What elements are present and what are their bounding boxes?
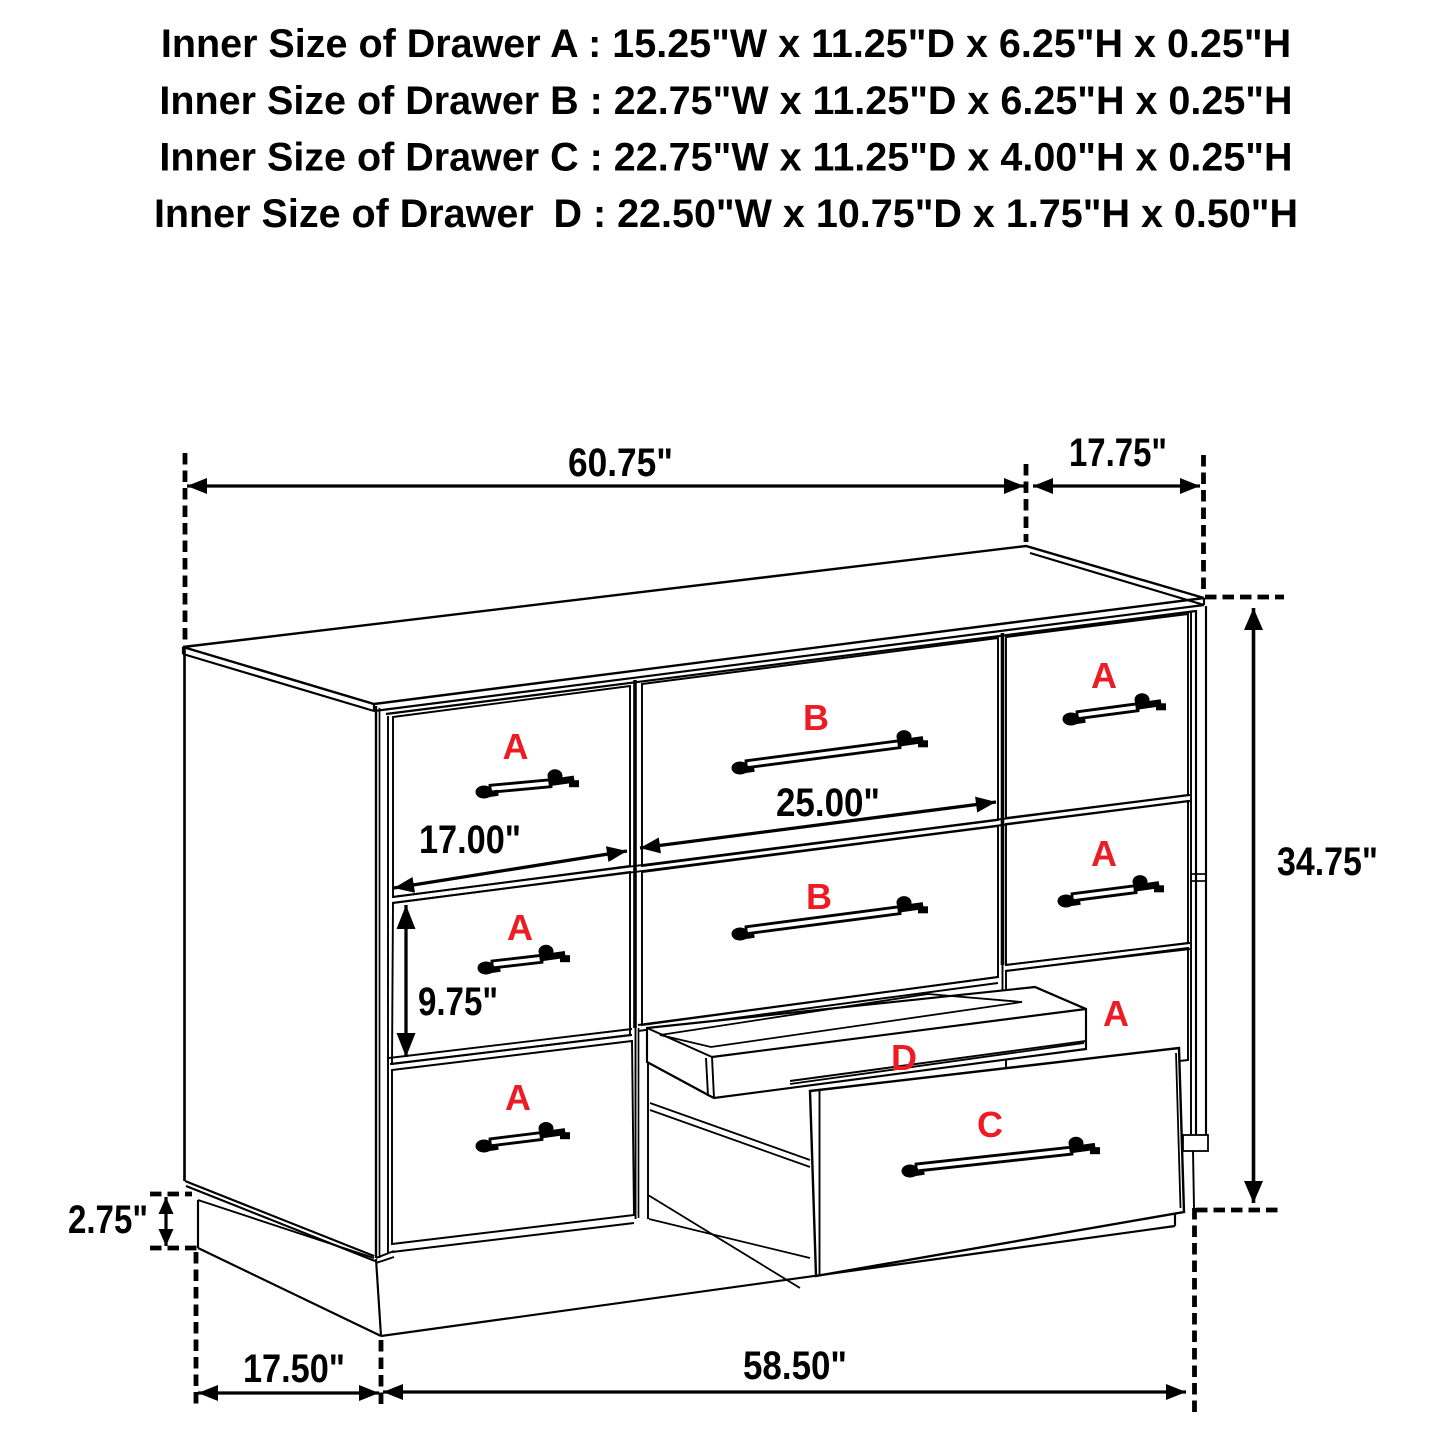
svg-text:9.75": 9.75" (418, 980, 498, 1024)
svg-text:A: A (503, 726, 529, 767)
svg-text:58.50": 58.50" (743, 1344, 847, 1388)
svg-text:Inner Size of Drawer B : 22.75: Inner Size of Drawer B : 22.75"W x 11.25… (159, 79, 1292, 123)
svg-text:34.75": 34.75" (1277, 840, 1378, 884)
svg-text:B: B (806, 876, 832, 917)
svg-text:C: C (977, 1104, 1003, 1145)
svg-text:17.00": 17.00" (419, 818, 521, 862)
svg-text:2.75": 2.75" (68, 1198, 148, 1242)
svg-text:A: A (507, 907, 533, 948)
svg-text:Inner Size of Drawer C : 22.75: Inner Size of Drawer C : 22.75"W x 11.25… (159, 136, 1292, 180)
svg-text:17.75": 17.75" (1069, 431, 1167, 475)
svg-text:A: A (505, 1077, 531, 1118)
svg-text:17.50": 17.50" (243, 1347, 345, 1391)
svg-text:Inner Size of Drawer A : 15.25: Inner Size of Drawer A : 15.25"W x 11.25… (161, 22, 1291, 66)
svg-text:60.75": 60.75" (568, 441, 673, 485)
svg-text:A: A (1091, 655, 1117, 696)
svg-text:25.00": 25.00" (776, 781, 880, 825)
svg-text:D: D (891, 1037, 917, 1078)
svg-text:B: B (803, 697, 829, 738)
svg-text:A: A (1103, 993, 1129, 1034)
svg-text:Inner Size of Drawer D : 22.50: Inner Size of Drawer D : 22.50"W x 10.75… (154, 192, 1298, 236)
svg-text:A: A (1091, 833, 1117, 874)
